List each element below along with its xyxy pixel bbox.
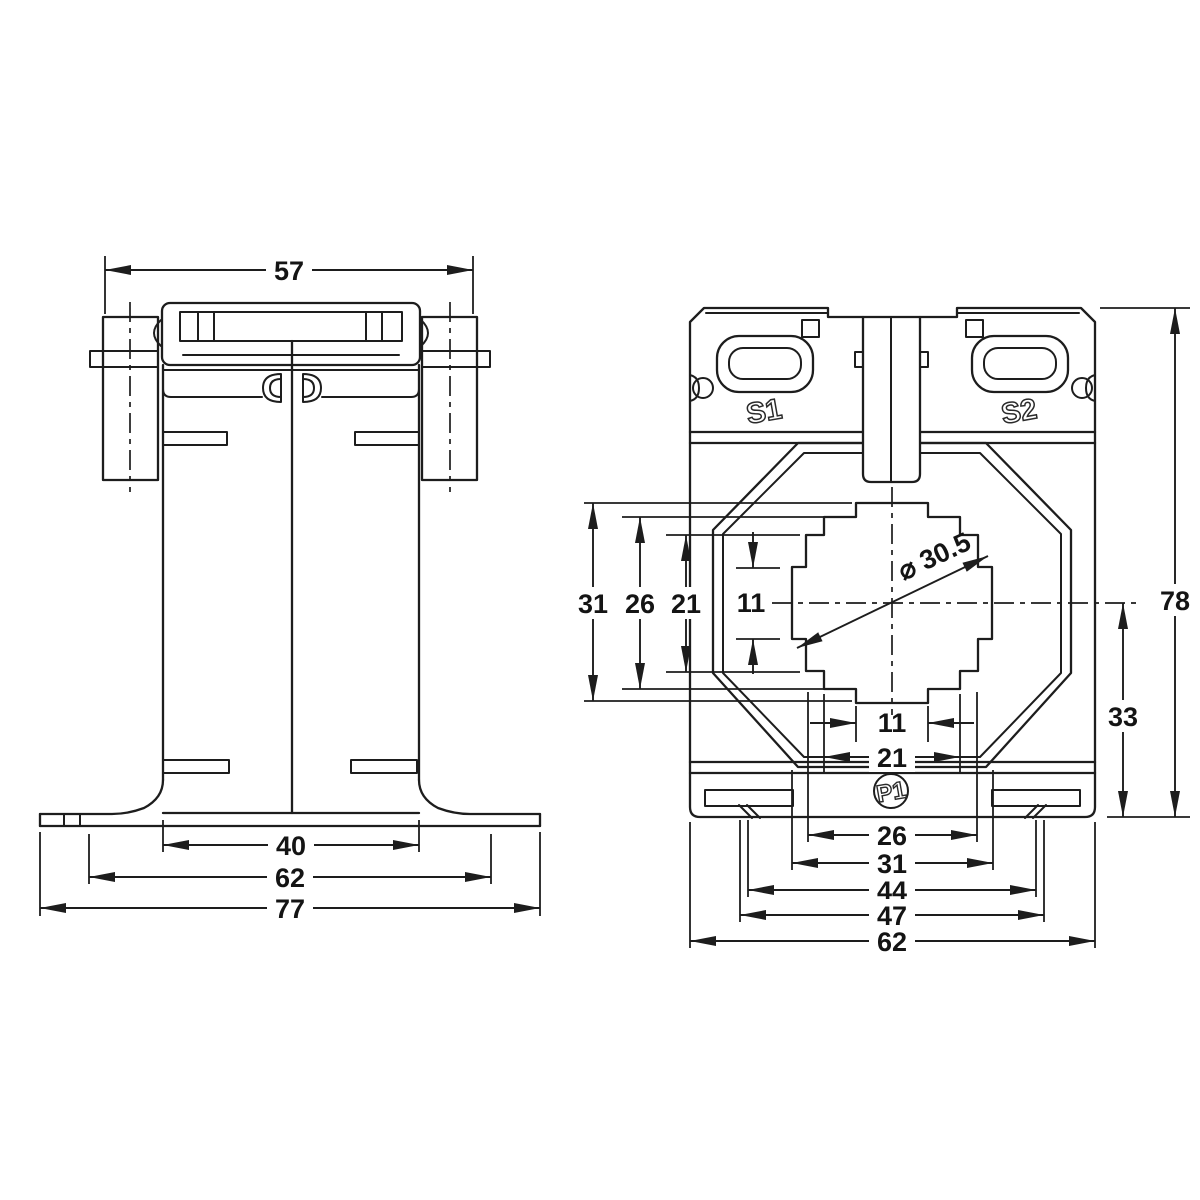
edge-notch-right xyxy=(1086,375,1095,401)
terminal-square-hole-right xyxy=(966,320,983,337)
side-tab-lower-left xyxy=(163,760,229,773)
edge-notch-left xyxy=(690,375,699,401)
dim-label-11-left: 11 xyxy=(737,588,766,618)
dim-label-31-left: 31 xyxy=(578,589,608,619)
busbar-tab xyxy=(855,317,928,482)
dim-label-26-bottom: 26 xyxy=(877,821,907,851)
drawing-page: 57 40 62 77 xyxy=(0,0,1200,1200)
dim-label-62-side: 62 xyxy=(275,863,305,893)
dim-label-26-left: 26 xyxy=(625,589,655,619)
technical-drawing-canvas: 57 40 62 77 xyxy=(0,0,1200,1200)
dim-label-77: 77 xyxy=(275,894,305,924)
dim-78-overall-height: 78 xyxy=(1100,308,1199,817)
dim-label-62-bottom: 62 xyxy=(877,927,907,957)
side-tab-upper-left xyxy=(163,432,227,445)
side-tab-upper-right xyxy=(355,432,419,445)
dim-33-center-to-base: 33 xyxy=(1099,603,1147,817)
corner-hole-left xyxy=(693,378,713,398)
label-p1: P1 xyxy=(874,777,908,809)
mounting-foot-right xyxy=(419,780,540,814)
terminal-slot-left xyxy=(717,336,813,392)
terminal-slot-right xyxy=(972,336,1068,392)
clamp-screw-tip-right xyxy=(477,351,490,367)
side-tab-lower-right xyxy=(351,760,417,773)
side-plate-left xyxy=(90,302,158,492)
din-slot-left xyxy=(705,790,793,806)
dim-label-33: 33 xyxy=(1108,702,1138,732)
dim-label-21-left: 21 xyxy=(671,589,701,619)
dim-label-40: 40 xyxy=(276,831,306,861)
corner-hole-right xyxy=(1072,378,1092,398)
label-s1: S1 xyxy=(744,393,785,431)
mounting-foot-left xyxy=(40,780,163,814)
clamp-screw-tip-left xyxy=(90,351,103,367)
label-s2: S2 xyxy=(999,393,1040,431)
tab-hook-left xyxy=(855,352,863,367)
body-side xyxy=(163,341,419,813)
side-plate-right xyxy=(422,302,490,492)
terminal-square-hole-left xyxy=(802,320,819,337)
mounting-feet xyxy=(40,780,540,826)
tab-hook-right xyxy=(920,352,928,367)
front-view: S1 S2 P1 xyxy=(570,308,1199,957)
dim-label-21-bottom: 21 xyxy=(877,743,907,773)
dim-11-bottom: 11 xyxy=(810,706,974,742)
dim-label-57: 57 xyxy=(274,256,304,286)
dim-label-78: 78 xyxy=(1160,586,1190,616)
din-slot-right xyxy=(992,790,1080,806)
side-view: 57 40 62 77 xyxy=(40,253,540,924)
dim-label-11-bottom: 11 xyxy=(878,708,907,738)
